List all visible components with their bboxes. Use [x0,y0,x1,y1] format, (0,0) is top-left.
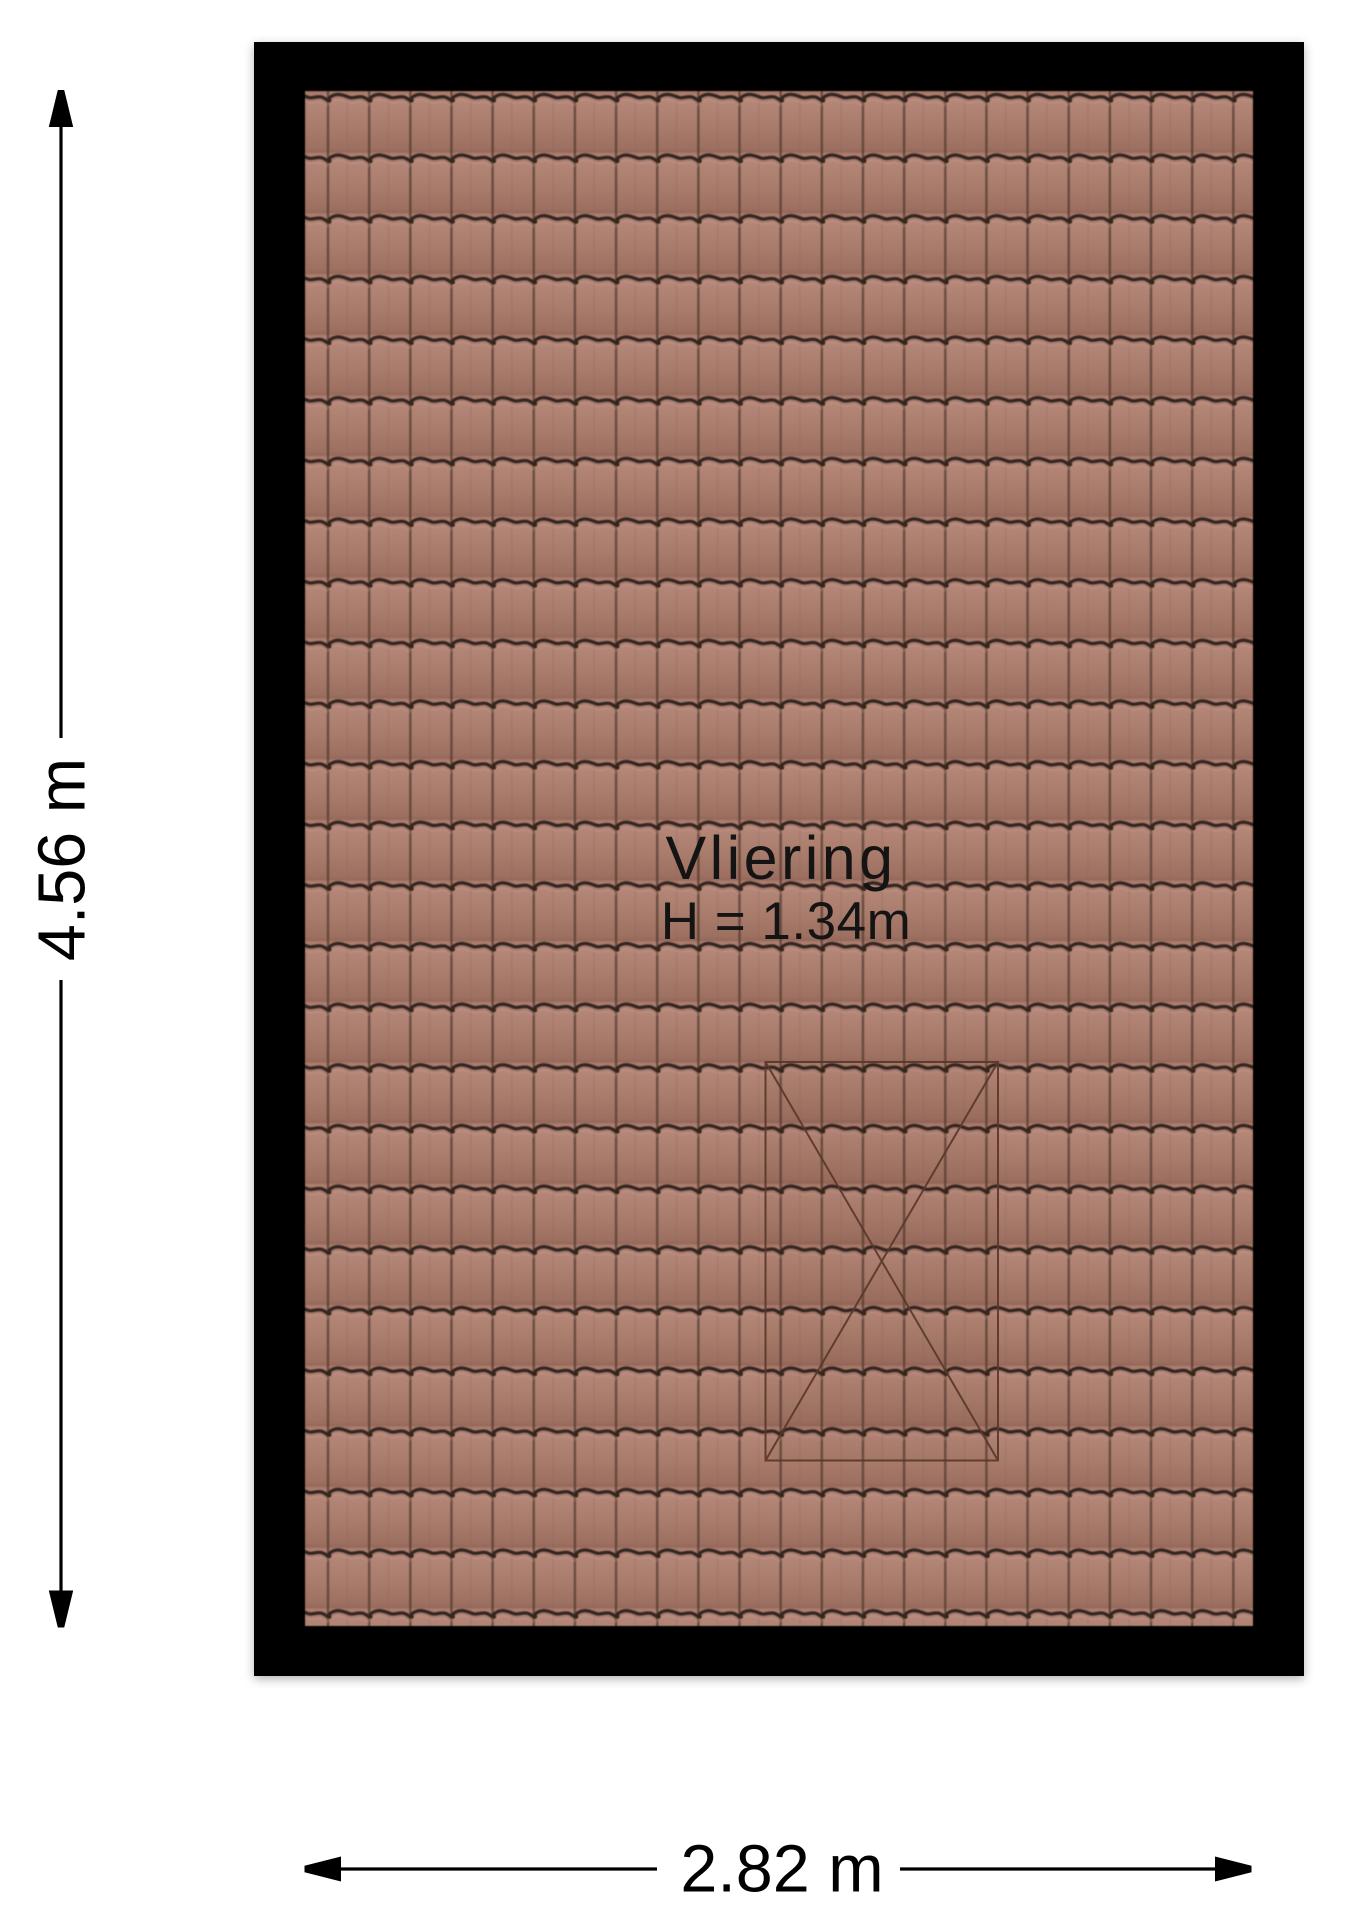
svg-text:4.56 m: 4.56 m [26,758,100,961]
svg-text:2.82 m: 2.82 m [680,1833,883,1907]
svg-text:Vliering: Vliering [665,824,896,892]
svg-text:H = 1.34m: H = 1.34m [661,892,911,951]
